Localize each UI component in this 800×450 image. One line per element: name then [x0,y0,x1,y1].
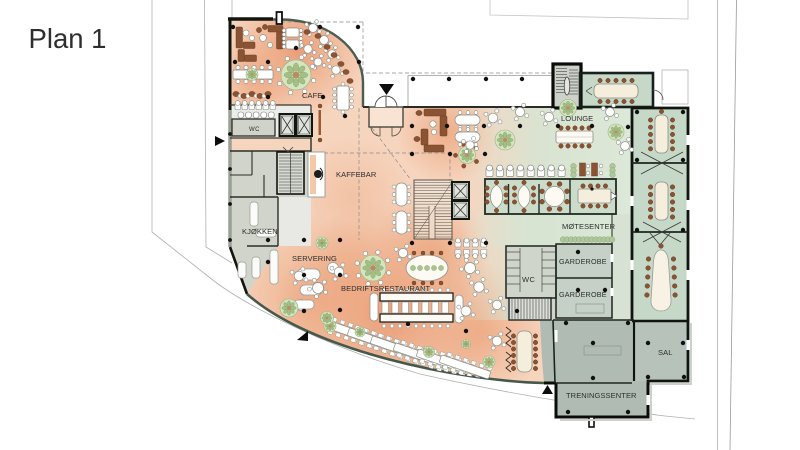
svg-text:CAFE: CAFE [302,91,322,100]
svg-text:GARDEROBE: GARDEROBE [559,290,607,299]
svg-text:BEDRIFTSRESTAURANT: BEDRIFTSRESTAURANT [341,284,430,293]
svg-text:WC: WC [522,275,535,284]
svg-text:WC: WC [249,127,260,133]
svg-text:SAL: SAL [658,348,672,357]
svg-text:KAFFEBAR: KAFFEBAR [336,170,377,179]
svg-text:LOUNGE: LOUNGE [561,114,593,123]
svg-text:KJØKKEN: KJØKKEN [242,227,278,236]
svg-text:GARDEROBE: GARDEROBE [559,257,607,266]
svg-text:MØTESENTER: MØTESENTER [562,222,616,231]
svg-text:Plan 1: Plan 1 [29,23,107,54]
svg-text:TRENINGSSENTER: TRENINGSSENTER [566,391,637,400]
svg-text:SERVERING: SERVERING [292,254,337,263]
